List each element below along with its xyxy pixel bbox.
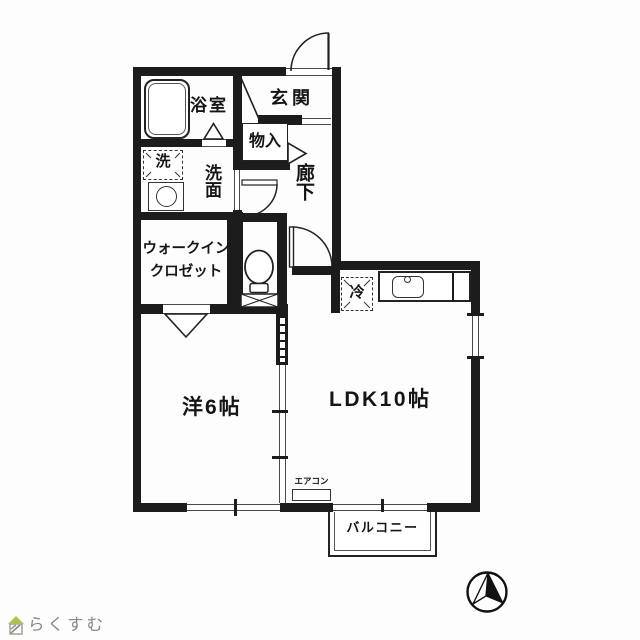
washing-machine-drain [156, 186, 177, 207]
wall-segment [133, 212, 243, 220]
washroom-door-opening [234, 170, 240, 210]
wic-label-line2: クロゼット [150, 264, 223, 280]
bathroom-door-opening [202, 139, 226, 147]
toilet-base [250, 284, 268, 293]
storage-door-triangle-icon [288, 143, 306, 164]
wall-segment [292, 266, 333, 275]
closet-track-hatch [280, 316, 285, 362]
entrance-step-line [302, 118, 331, 125]
wic-label: ウォークイン クロゼット [141, 238, 231, 284]
washroom-door-leaf [242, 180, 277, 185]
washroom-door-arc-icon [245, 184, 277, 216]
north-arrow-icon [468, 573, 507, 612]
wall-segment [141, 139, 202, 147]
ldk-door-leaf [290, 227, 294, 267]
washer-label: 洗 [143, 154, 183, 171]
wall-segment [226, 139, 235, 147]
entrance-diagonal-line [241, 78, 259, 119]
entrance-door-opening [286, 68, 332, 76]
bathtub-inner-line [148, 83, 186, 135]
sliding-partition [279, 365, 286, 503]
wall-segment [133, 304, 163, 314]
bathroom-door-triangle-icon [204, 124, 223, 140]
wall-segment [332, 261, 480, 270]
storage-label: 物入 [244, 133, 286, 151]
ldk-label: LDK10帖 [329, 388, 432, 411]
partition-tick [272, 410, 288, 413]
bedroom-label: 洋6帖 [182, 396, 242, 419]
wic-door-opening [163, 304, 210, 314]
ldk-door-arc-icon [292, 227, 332, 267]
floorplan-canvas: 浴室 玄関 物入 廊下 洗 洗面 ウォークイン クロゼット 冷 洋6帖 LDK1… [0, 0, 640, 640]
plan-overlay [0, 0, 640, 640]
wall-segment [427, 503, 480, 512]
wall-segment [233, 161, 290, 170]
logo-text: らくすむ [28, 616, 106, 634]
ldk-side-window [472, 315, 479, 358]
faucet [404, 276, 411, 283]
partition-tick [272, 456, 288, 459]
aircon-label: エアコン [291, 477, 332, 486]
window-tick [467, 356, 484, 359]
wall-segment [133, 67, 141, 512]
wall-segment [280, 503, 333, 512]
wall-segment [133, 67, 286, 76]
entrance-label: 玄関 [270, 89, 314, 109]
balcony-window [333, 504, 427, 511]
house-logo-roof [8, 616, 24, 624]
bathroom-label: 浴室 [190, 97, 228, 116]
washroom-label: 洗面 [195, 164, 221, 198]
wall-segment [233, 67, 242, 170]
entrance-door-arc-icon [291, 33, 329, 71]
wic-label-line1: ウォークイン [143, 241, 230, 257]
house-logo-icon [8, 616, 24, 634]
wic-door-triangle-icon [165, 314, 207, 337]
wall-segment [471, 358, 480, 512]
wall-segment [471, 270, 480, 315]
air-conditioner [292, 489, 331, 501]
balcony-label: バルコニー [334, 521, 431, 535]
wall-segment [133, 503, 187, 512]
window-tick [234, 499, 237, 516]
wall-segment [332, 67, 341, 270]
wall-segment [331, 270, 340, 313]
fridge-label: 冷 [341, 285, 373, 302]
wall-segment [277, 213, 287, 308]
hallway-label: 廊下 [291, 163, 315, 201]
window-tick [467, 313, 484, 316]
toilet-icon [245, 251, 273, 284]
counter-divider [452, 271, 454, 302]
wall-segment [210, 304, 277, 314]
